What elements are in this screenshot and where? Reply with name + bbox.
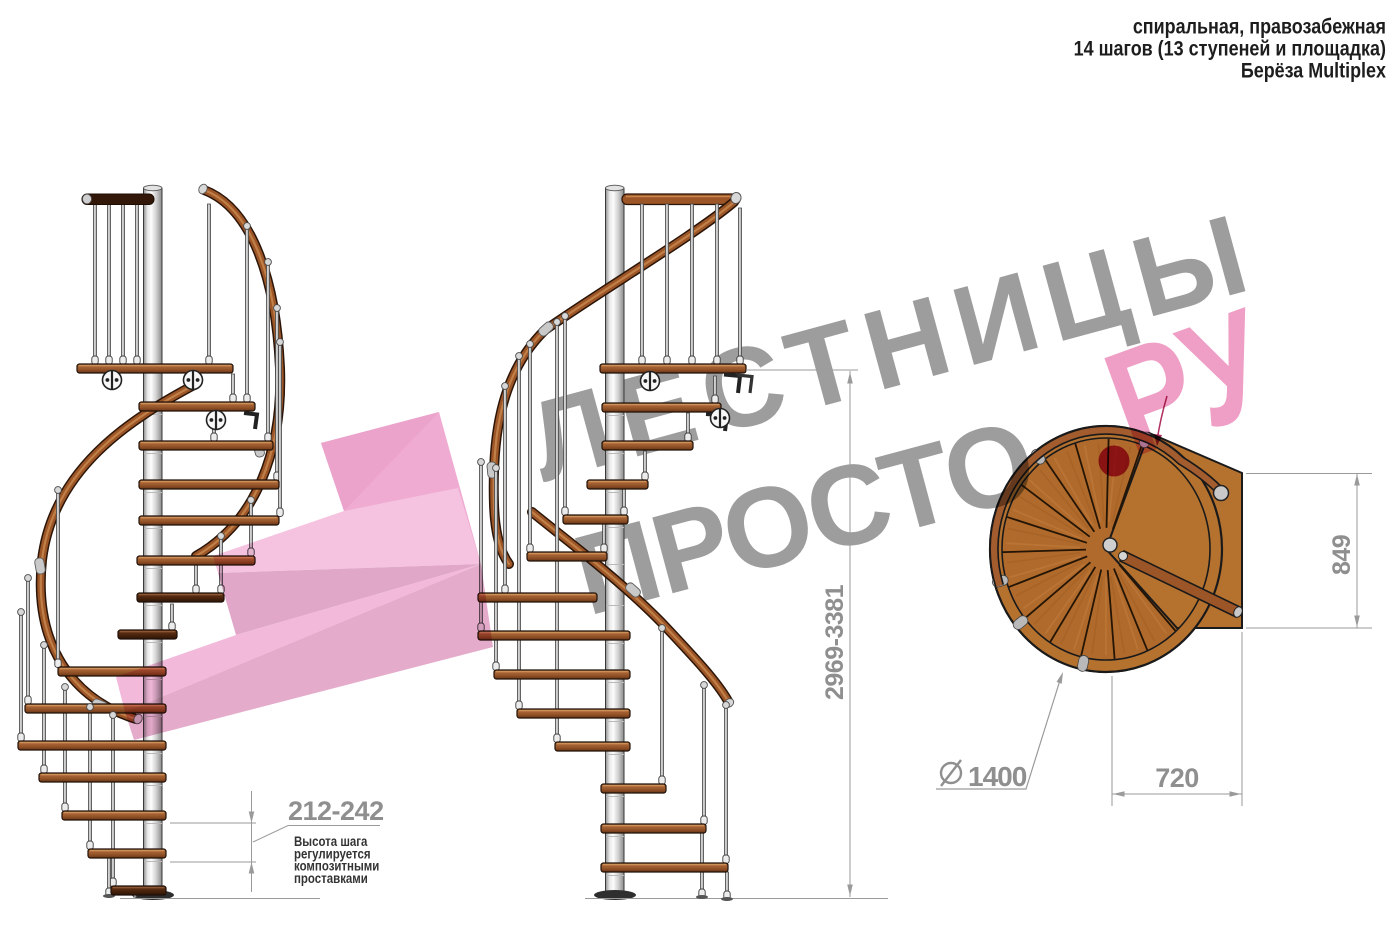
svg-text:1400: 1400 <box>968 761 1027 792</box>
svg-text:Высота шагарегулируетсякомпози: Высота шагарегулируетсякомпозитнымипрост… <box>294 834 379 886</box>
svg-text:849: 849 <box>1328 535 1356 575</box>
svg-text:212-242: 212-242 <box>288 796 384 826</box>
svg-text:спиральная, правозабежная: спиральная, правозабежная <box>1133 15 1386 39</box>
svg-text:14 шагов (13 ступеней и площад: 14 шагов (13 ступеней и площадка) <box>1074 37 1386 61</box>
svg-text:2969-3381: 2969-3381 <box>821 584 849 700</box>
svg-text:720: 720 <box>1155 763 1199 793</box>
svg-text:Берёза Multiplex: Берёза Multiplex <box>1241 59 1386 83</box>
